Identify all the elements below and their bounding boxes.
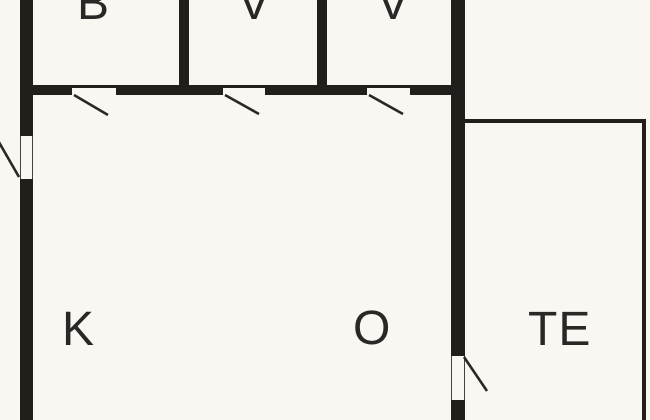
wall-corridor-segment-2 bbox=[116, 85, 223, 95]
room-label-b: B bbox=[77, 0, 110, 28]
room-label-v1: V bbox=[238, 0, 271, 28]
wall-te-right bbox=[642, 119, 646, 420]
door-swing-b bbox=[74, 95, 108, 115]
door-swing-v1 bbox=[225, 95, 259, 114]
wall-right-lower bbox=[451, 400, 465, 420]
floor-plan-canvas: B V V K O TE bbox=[0, 0, 650, 420]
wall-between-v1-and-v2 bbox=[317, 0, 327, 85]
room-label-o: O bbox=[353, 305, 391, 353]
wall-corridor-segment-1 bbox=[20, 85, 72, 95]
wall-right-upper bbox=[451, 0, 465, 356]
door-swing-te bbox=[464, 357, 487, 391]
door-lintel-v1 bbox=[223, 85, 265, 88]
door-lintel-b bbox=[72, 85, 116, 88]
wall-corridor-segment-3 bbox=[265, 85, 367, 95]
wall-left-lower bbox=[20, 179, 33, 420]
wall-between-b-and-v1 bbox=[179, 0, 189, 85]
wall-left-upper bbox=[20, 0, 33, 136]
room-label-k: K bbox=[62, 306, 95, 354]
door-swing-entrance bbox=[0, 137, 19, 177]
door-opening-te bbox=[451, 356, 465, 400]
door-swing-v2 bbox=[369, 95, 403, 114]
door-opening-entrance bbox=[20, 136, 33, 179]
room-label-v2: V bbox=[377, 0, 410, 28]
door-lintel-v2 bbox=[367, 85, 410, 88]
room-label-te: TE bbox=[528, 306, 591, 354]
wall-te-top bbox=[465, 119, 646, 123]
